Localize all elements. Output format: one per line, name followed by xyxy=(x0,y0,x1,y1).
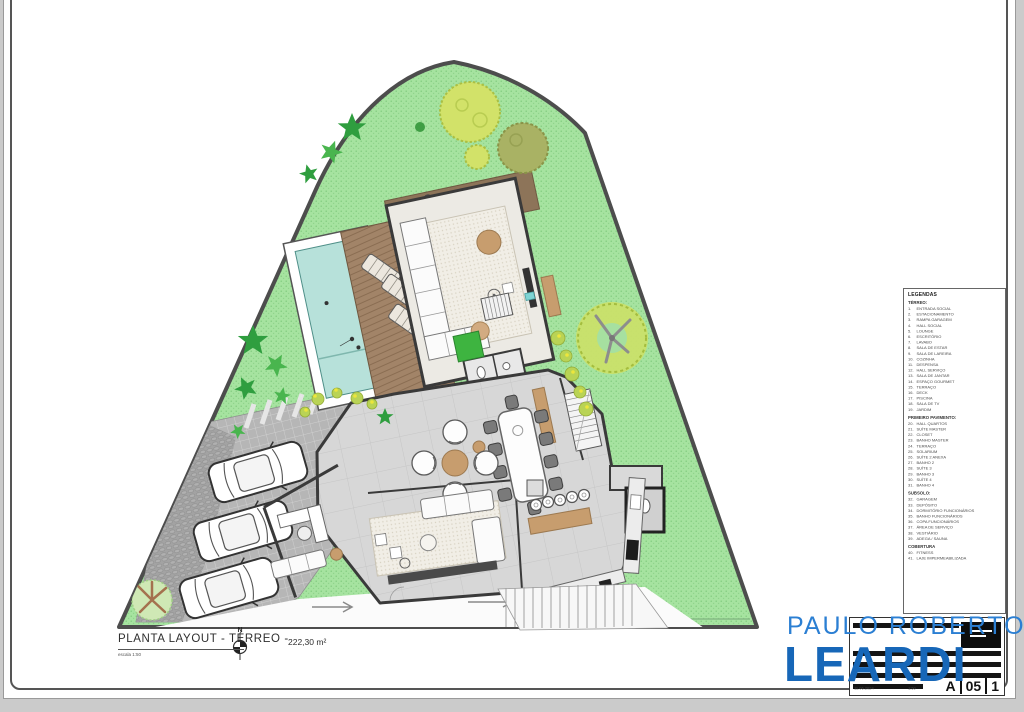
legend-item: 19.JARDIM xyxy=(908,407,1005,413)
legend-title: LEGENDAS xyxy=(908,292,1005,298)
plan-title-underline xyxy=(118,649,244,650)
sheet-code-revision: 1 xyxy=(985,678,1003,694)
plan-title: PLANTA LAYOUT - TÉRREO - xyxy=(118,633,289,645)
floor-plan-drawing: N xyxy=(0,0,1024,712)
legend-item: 39.ADEGA / SAUNA xyxy=(908,536,1005,542)
legend-section-header: TÉRREO: xyxy=(908,300,1005,305)
legend-section-header: COBERTURA xyxy=(908,544,1005,549)
legend-body: TÉRREO:1.ENTRADA SOCIAL2.ESTACIONAMENTO3… xyxy=(908,300,1005,561)
legend-section-header: SUBSOLO: xyxy=(908,491,1005,496)
tree-branching xyxy=(576,302,648,374)
plan-area: 222,30 m² xyxy=(288,637,326,647)
legend-item: 31.BANHO 4 xyxy=(908,483,1005,489)
plan-scale-note: escala 1:50 xyxy=(118,652,188,662)
legend-box: LEGENDAS TÉRREO:1.ENTRADA SOCIAL2.ESTACI… xyxy=(903,288,1006,614)
legend-section-header: PRIMEIRO PAVIMENTO: xyxy=(908,415,1005,420)
legend-item: 41.LAJE IMPERMEABILIZADA xyxy=(908,556,1005,562)
brand-name-main: LEARDI xyxy=(784,637,967,693)
